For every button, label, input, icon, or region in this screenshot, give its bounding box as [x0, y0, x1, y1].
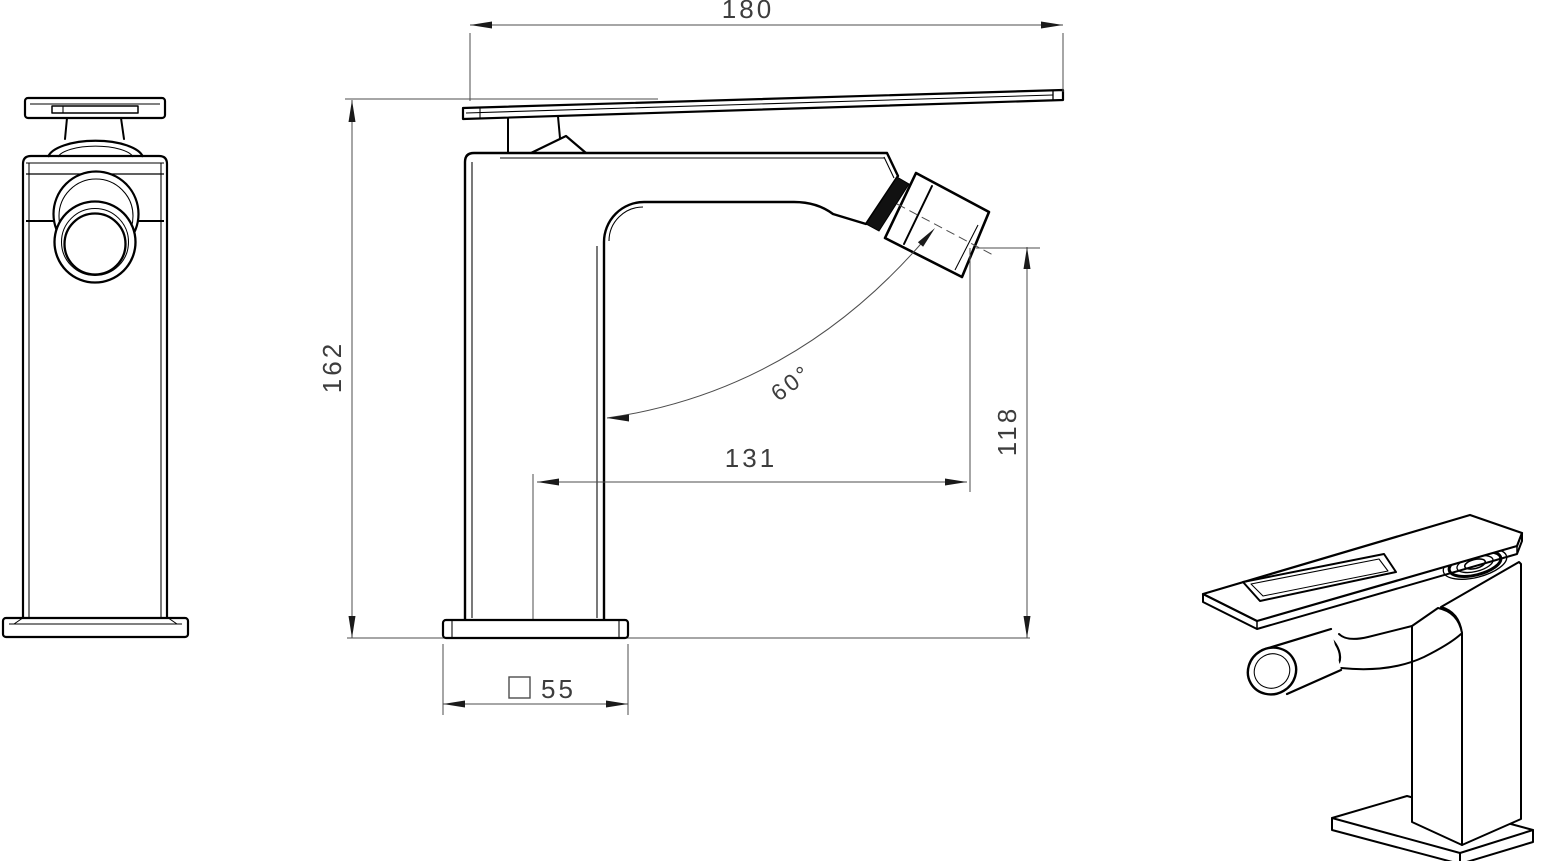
extension-line — [470, 33, 1063, 101]
dimension-60deg: 60° — [607, 228, 935, 422]
spout-chamfer-inner — [884, 157, 894, 178]
handle-wedge — [531, 136, 586, 153]
inner-corner-fillet — [609, 207, 643, 241]
handle-plate — [25, 98, 165, 118]
arrowhead — [1024, 247, 1031, 269]
aerator-face-mid — [62, 209, 129, 276]
angle-arc — [607, 238, 926, 418]
dim-text-outlet-height: 118 — [992, 406, 1022, 456]
dim-text-handle-length: 180 — [722, 0, 774, 24]
arrowhead — [349, 100, 356, 122]
faucet-drawing: 180 162 131 118 60° 55 — [0, 0, 1550, 861]
arrowhead — [945, 479, 967, 486]
perspective-view — [1203, 515, 1533, 861]
arrowhead — [607, 415, 629, 422]
arrowhead — [470, 22, 492, 29]
side-view — [463, 90, 1063, 620]
arrowhead — [1024, 616, 1031, 638]
valve-dome — [48, 141, 143, 157]
column-left-face — [1412, 608, 1462, 845]
body-inner-edges-side — [472, 162, 597, 618]
dimension-55: 55 — [443, 644, 628, 715]
square-section-icon — [509, 677, 530, 698]
technical-drawing-canvas: 180 162 131 118 60° 55 — [0, 0, 1550, 861]
arrowhead — [1041, 22, 1063, 29]
front-view — [3, 98, 188, 637]
dimension-180: 180 — [470, 0, 1063, 101]
base-flange-side — [443, 620, 628, 638]
dim-text-overall-height: 162 — [317, 341, 347, 393]
dim-text-base-width: 55 — [541, 674, 576, 704]
dimension-118: 118 — [976, 247, 1040, 638]
dim-text-spout-angle: 60° — [766, 359, 817, 406]
body-spout-outline — [465, 153, 898, 620]
valve-stem — [65, 118, 124, 139]
handle-lever — [463, 90, 1063, 119]
arrowhead — [443, 701, 465, 708]
arrowhead — [606, 701, 628, 708]
base-flange — [3, 618, 188, 637]
arrowhead — [537, 479, 559, 486]
dim-text-spout-reach: 131 — [725, 443, 777, 473]
arrowhead — [349, 616, 356, 638]
side-view-base — [443, 620, 628, 638]
arm-underside-edge — [1339, 626, 1412, 639]
dimension-131: 131 — [533, 248, 970, 638]
